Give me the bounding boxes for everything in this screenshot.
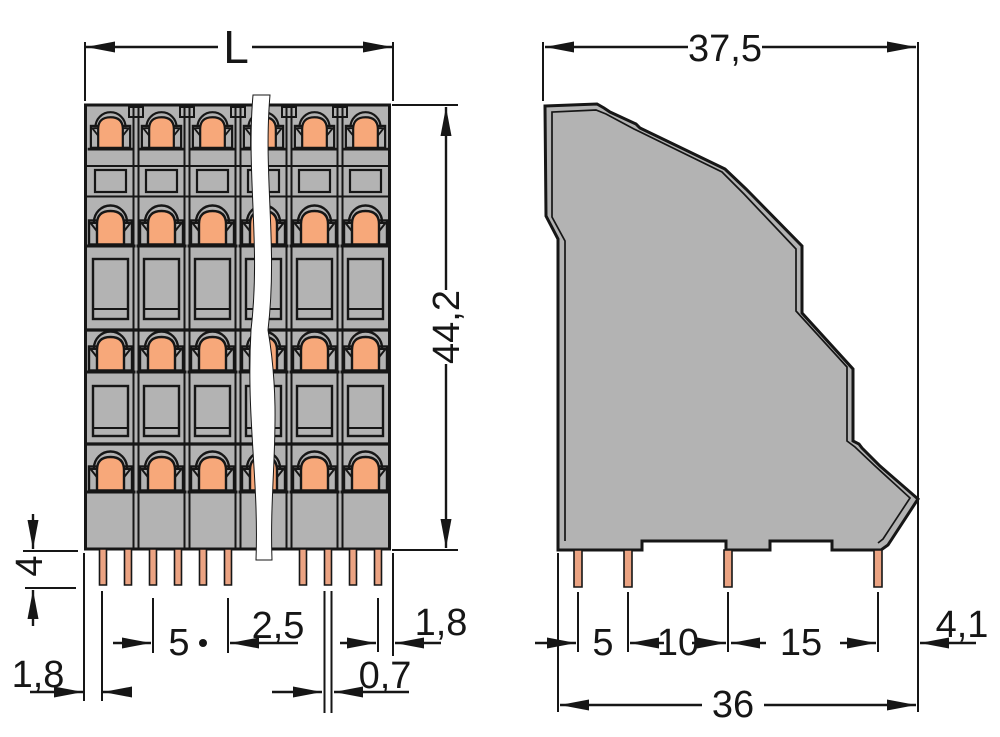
- dim-front-height: 44,2: [426, 290, 468, 364]
- dim-pin-width: 0,7: [359, 655, 412, 697]
- dim-pin-offset-right: 1,8: [415, 602, 468, 644]
- dim-side-spacing-a: 5: [592, 622, 613, 664]
- dim-side-spacing-c: 15: [780, 622, 822, 664]
- dim-pin-offset-left: 1,8: [12, 654, 65, 696]
- dim-pin-row-spacing: 2,5: [252, 605, 305, 647]
- side-solder-pins: [574, 550, 882, 587]
- terminal-block-drawing: L 44,2 4 1,8 5 2,5 0,7 1,8 37,5 5 10 15 …: [0, 0, 1000, 737]
- dimensional-drawing-page: L 44,2 4 1,8 5 2,5 0,7 1,8 37,5 5 10 15 …: [0, 0, 1000, 737]
- front-solder-pins: [100, 549, 382, 585]
- dim-front-length-label: L: [223, 21, 249, 73]
- dim-side-body-depth: 36: [712, 684, 754, 726]
- front-view: [85, 95, 391, 585]
- side-view: [545, 104, 918, 587]
- dim-side-rear-offset: 4,1: [936, 604, 989, 646]
- dim-dot: [199, 639, 207, 647]
- dim-pin-pitch: 5: [168, 622, 189, 664]
- dim-pin-length: 4: [9, 555, 51, 576]
- side-body: [545, 104, 918, 550]
- dim-side-spacing-b: 10: [657, 622, 699, 664]
- dim-side-overall-depth: 37,5: [688, 28, 762, 70]
